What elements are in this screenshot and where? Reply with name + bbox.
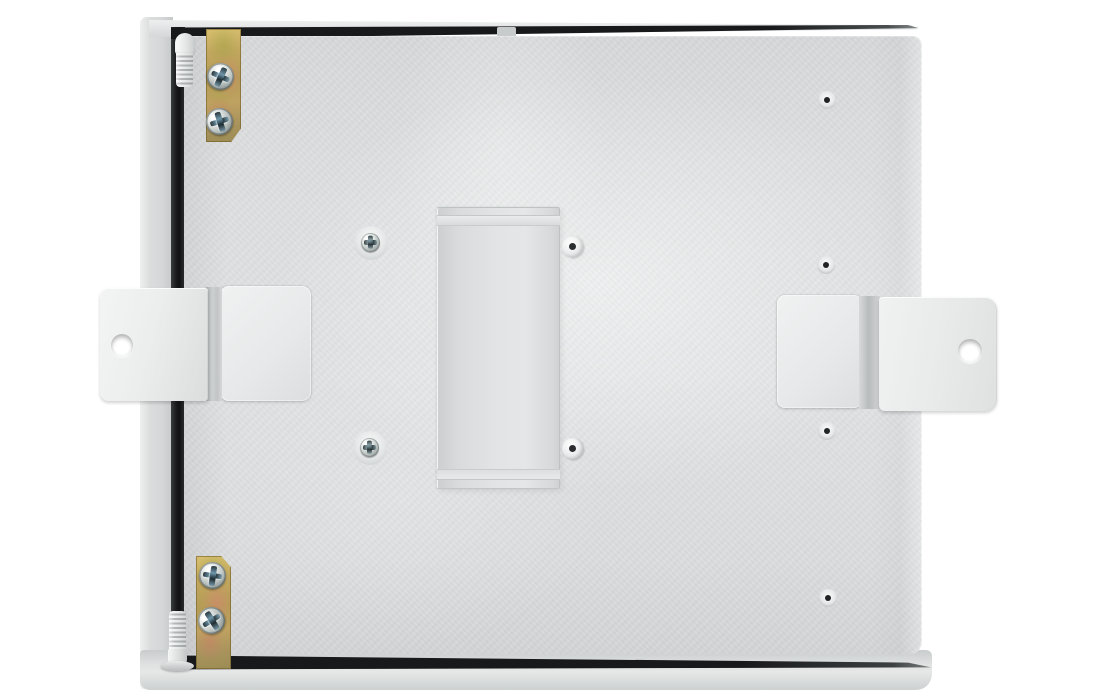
mounting-hole: [818, 422, 836, 440]
rivet-center-hole: [569, 243, 576, 250]
hole-opening: [824, 428, 830, 434]
center-mounting-channel: [437, 207, 560, 489]
hole-opening: [823, 262, 829, 268]
door-edge-bottom: [140, 650, 932, 690]
rivet: [562, 236, 583, 257]
channel-top-flange: [437, 215, 560, 226]
hinge-pin-washer: [161, 661, 194, 671]
mounting-hole: [819, 589, 837, 607]
hole-opening: [824, 97, 830, 103]
rivet: [562, 438, 583, 459]
enclosure-rear-photo: [0, 0, 1093, 700]
mounting-hole: [818, 91, 836, 109]
panel-screw: [353, 431, 387, 465]
wall-bracket-left-fold: [206, 287, 222, 401]
screw-head: [361, 233, 380, 252]
wall-bracket-left-pad: [220, 286, 311, 401]
screw-head: [360, 438, 379, 457]
channel-bottom-flange: [437, 469, 560, 480]
hinge-pin-threads: [176, 53, 193, 87]
hole-opening: [825, 595, 831, 601]
mounting-hole: [817, 256, 835, 274]
wall-bracket-right-hole: [958, 339, 982, 363]
panel-screw: [354, 226, 388, 260]
hinge-pin-top: [175, 33, 195, 87]
wall-bracket-right-fold: [859, 296, 880, 409]
hinge-pin-bottom: [168, 611, 188, 669]
rivet-center-hole: [569, 445, 576, 452]
wall-bracket-right-pad: [777, 295, 862, 408]
wall-bracket-left-hole: [111, 334, 133, 357]
hinge-pin-cap: [175, 33, 195, 55]
hinge-pin-threads: [169, 611, 186, 651]
